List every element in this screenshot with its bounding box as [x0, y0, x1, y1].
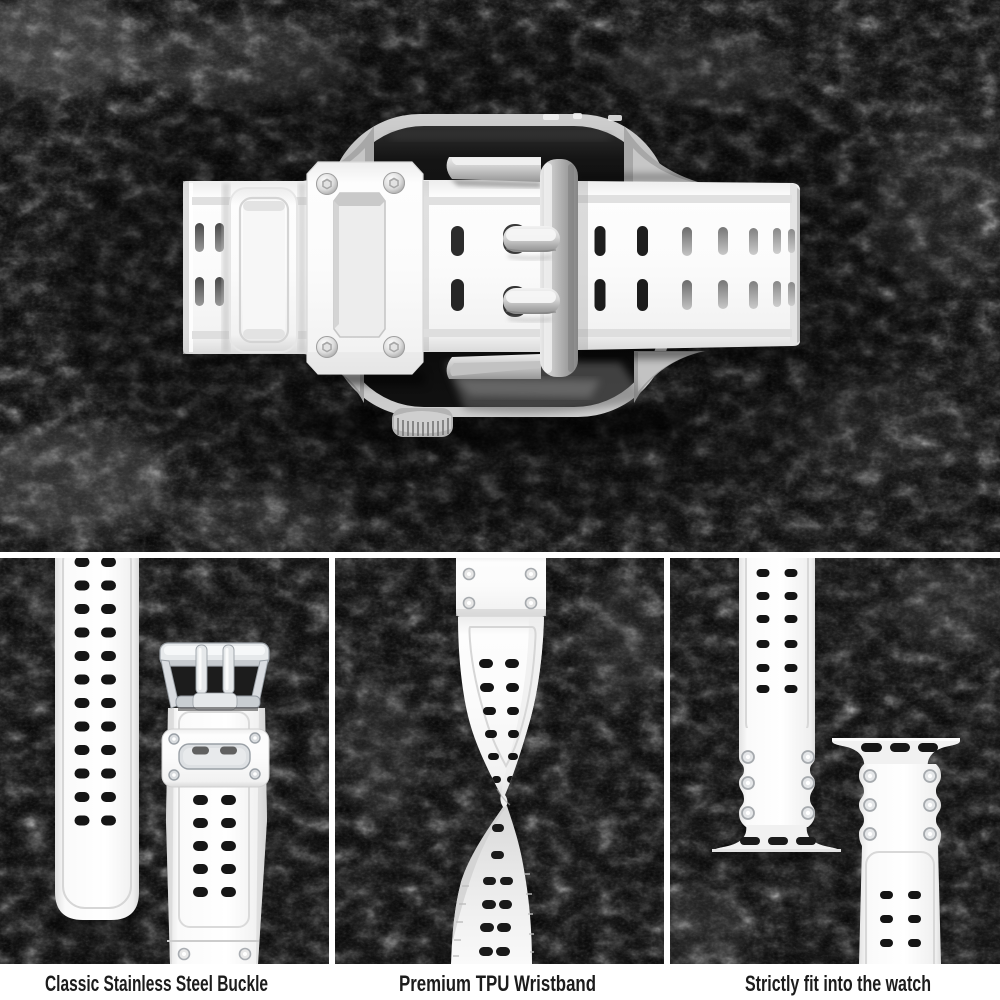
svg-text:Strictly fit into the watch: Strictly fit into the watch [745, 971, 931, 996]
svg-text:Classic Stainless Steel Buckle: Classic Stainless Steel Buckle [45, 971, 268, 996]
svg-text:Premium TPU Wristband: Premium TPU Wristband [399, 971, 596, 996]
